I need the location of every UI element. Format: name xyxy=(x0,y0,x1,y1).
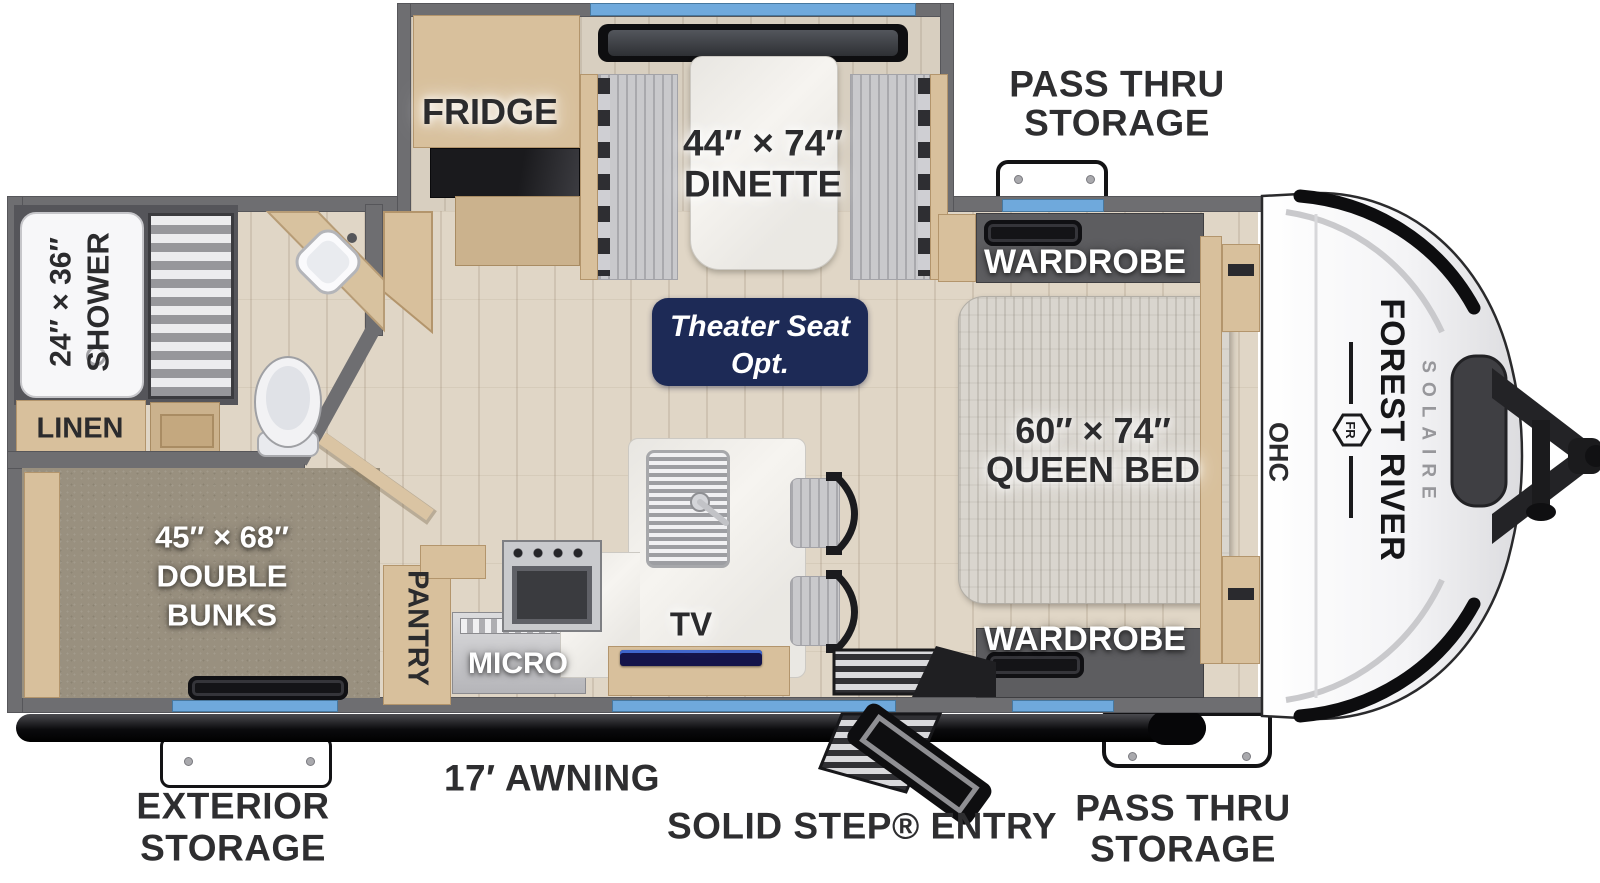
tv-screen xyxy=(620,650,762,666)
pass-thru-bottom-label-line2: STORAGE xyxy=(1090,831,1276,868)
shower-text: SHOWER xyxy=(83,232,114,372)
svg-text:FR: FR xyxy=(1343,421,1358,439)
bunk-side-rail xyxy=(24,472,60,698)
wardrobe-top-label: WARDROBE xyxy=(984,245,1186,279)
bunk-floor-hatch xyxy=(188,676,348,700)
bunks-label-line2: DOUBLE xyxy=(157,561,288,592)
bath-wall-stub xyxy=(366,205,382,335)
linen-label: LINEN xyxy=(37,415,124,444)
brand-make-label: FOREST RIVER xyxy=(1375,298,1409,561)
brand-model-label: SOLAIRE xyxy=(1419,360,1438,507)
brand-emblem-icon: FR xyxy=(1334,415,1370,445)
window-marker xyxy=(590,3,916,16)
fridge-label: FRIDGE xyxy=(422,94,558,130)
bed-side-cabinet-slot xyxy=(1228,588,1254,600)
theater-seat-option-line2: Opt. xyxy=(652,350,868,379)
bath-bunk-wall xyxy=(8,452,304,468)
wall-top-right xyxy=(953,197,1262,211)
pass-thru-bottom-label-line1: PASS THRU xyxy=(1075,790,1291,827)
dinette-bench-trim xyxy=(918,78,930,276)
bar-stool xyxy=(790,576,840,646)
bed-side-cabinet-slot xyxy=(1228,264,1254,276)
dinette-bench-trim xyxy=(598,78,610,276)
awning-tube xyxy=(16,714,1206,742)
window-marker xyxy=(1012,700,1114,712)
theater-seat-option-line1: Theater Seat xyxy=(652,312,868,342)
screw-icon xyxy=(1128,752,1137,761)
pantry-label: PANTRY xyxy=(403,570,432,686)
bed-side-cabinet xyxy=(1222,556,1260,664)
exterior-storage-label-line2: STORAGE xyxy=(140,830,326,867)
bed-frame-rail xyxy=(1200,236,1222,664)
island-sink xyxy=(646,450,730,568)
queen-label: QUEEN BED xyxy=(986,452,1200,488)
fridge-door xyxy=(430,148,580,198)
window-marker xyxy=(1002,199,1104,212)
queen-size-label: 60″ × 74″ xyxy=(1015,413,1171,449)
dinette-size-label: 44″ × 74″ xyxy=(683,125,843,162)
awning-label: 17′ AWNING xyxy=(444,760,660,797)
screw-icon xyxy=(184,757,193,766)
fridge-base-cabinet xyxy=(455,196,580,266)
screw-icon xyxy=(1014,175,1023,184)
bath-drawer-inset xyxy=(160,414,214,448)
screw-icon xyxy=(306,757,315,766)
pass-thru-top-label-line2: STORAGE xyxy=(1024,105,1210,142)
pass-thru-top-label-line1: PASS THRU xyxy=(1009,66,1225,103)
bar-stool xyxy=(790,478,840,548)
floorplan-canvas: Theater Seat Opt. xyxy=(0,0,1600,883)
dinette-label: DINETTE xyxy=(684,166,842,203)
bunks-label-line3: BUNKS xyxy=(167,600,277,631)
bed-side-cabinet xyxy=(1222,244,1260,332)
brand-flourish xyxy=(1349,456,1353,518)
brand-flourish xyxy=(1349,342,1353,404)
window-marker xyxy=(172,700,338,712)
slideout-wall-left xyxy=(398,4,410,211)
stove-oven-window xyxy=(512,566,592,624)
screw-icon xyxy=(1086,175,1095,184)
bunks-size-label: 45″ × 68″ xyxy=(155,522,289,553)
theater-seat-option-badge: Theater Seat Opt. xyxy=(652,298,868,386)
dinette-bench-arm xyxy=(580,74,598,280)
dinette-bench xyxy=(598,74,678,280)
bedroom-cabinet xyxy=(938,214,976,282)
shower-glass-door xyxy=(148,213,234,399)
wardrobe-bottom-label: WARDROBE xyxy=(984,622,1186,656)
stove-knobs xyxy=(510,548,594,558)
exterior-storage-label-line1: EXTERIOR xyxy=(136,788,329,825)
tv-label: TV xyxy=(670,608,712,641)
shower-size-text: 24″ × 36″ xyxy=(47,232,77,372)
screw-icon xyxy=(1242,752,1251,761)
entry-label: SOLID STEP® ENTRY xyxy=(667,808,1057,845)
ohc-label: OHC xyxy=(1265,422,1292,482)
micro-label: MICRO xyxy=(468,649,568,679)
shower-label: 24″ × 36″ SHOWER xyxy=(47,232,114,372)
awning-tube-end-cap xyxy=(1148,711,1206,745)
hitch xyxy=(1452,356,1600,544)
slideout-window-glass xyxy=(608,30,898,56)
window-marker xyxy=(612,700,896,712)
